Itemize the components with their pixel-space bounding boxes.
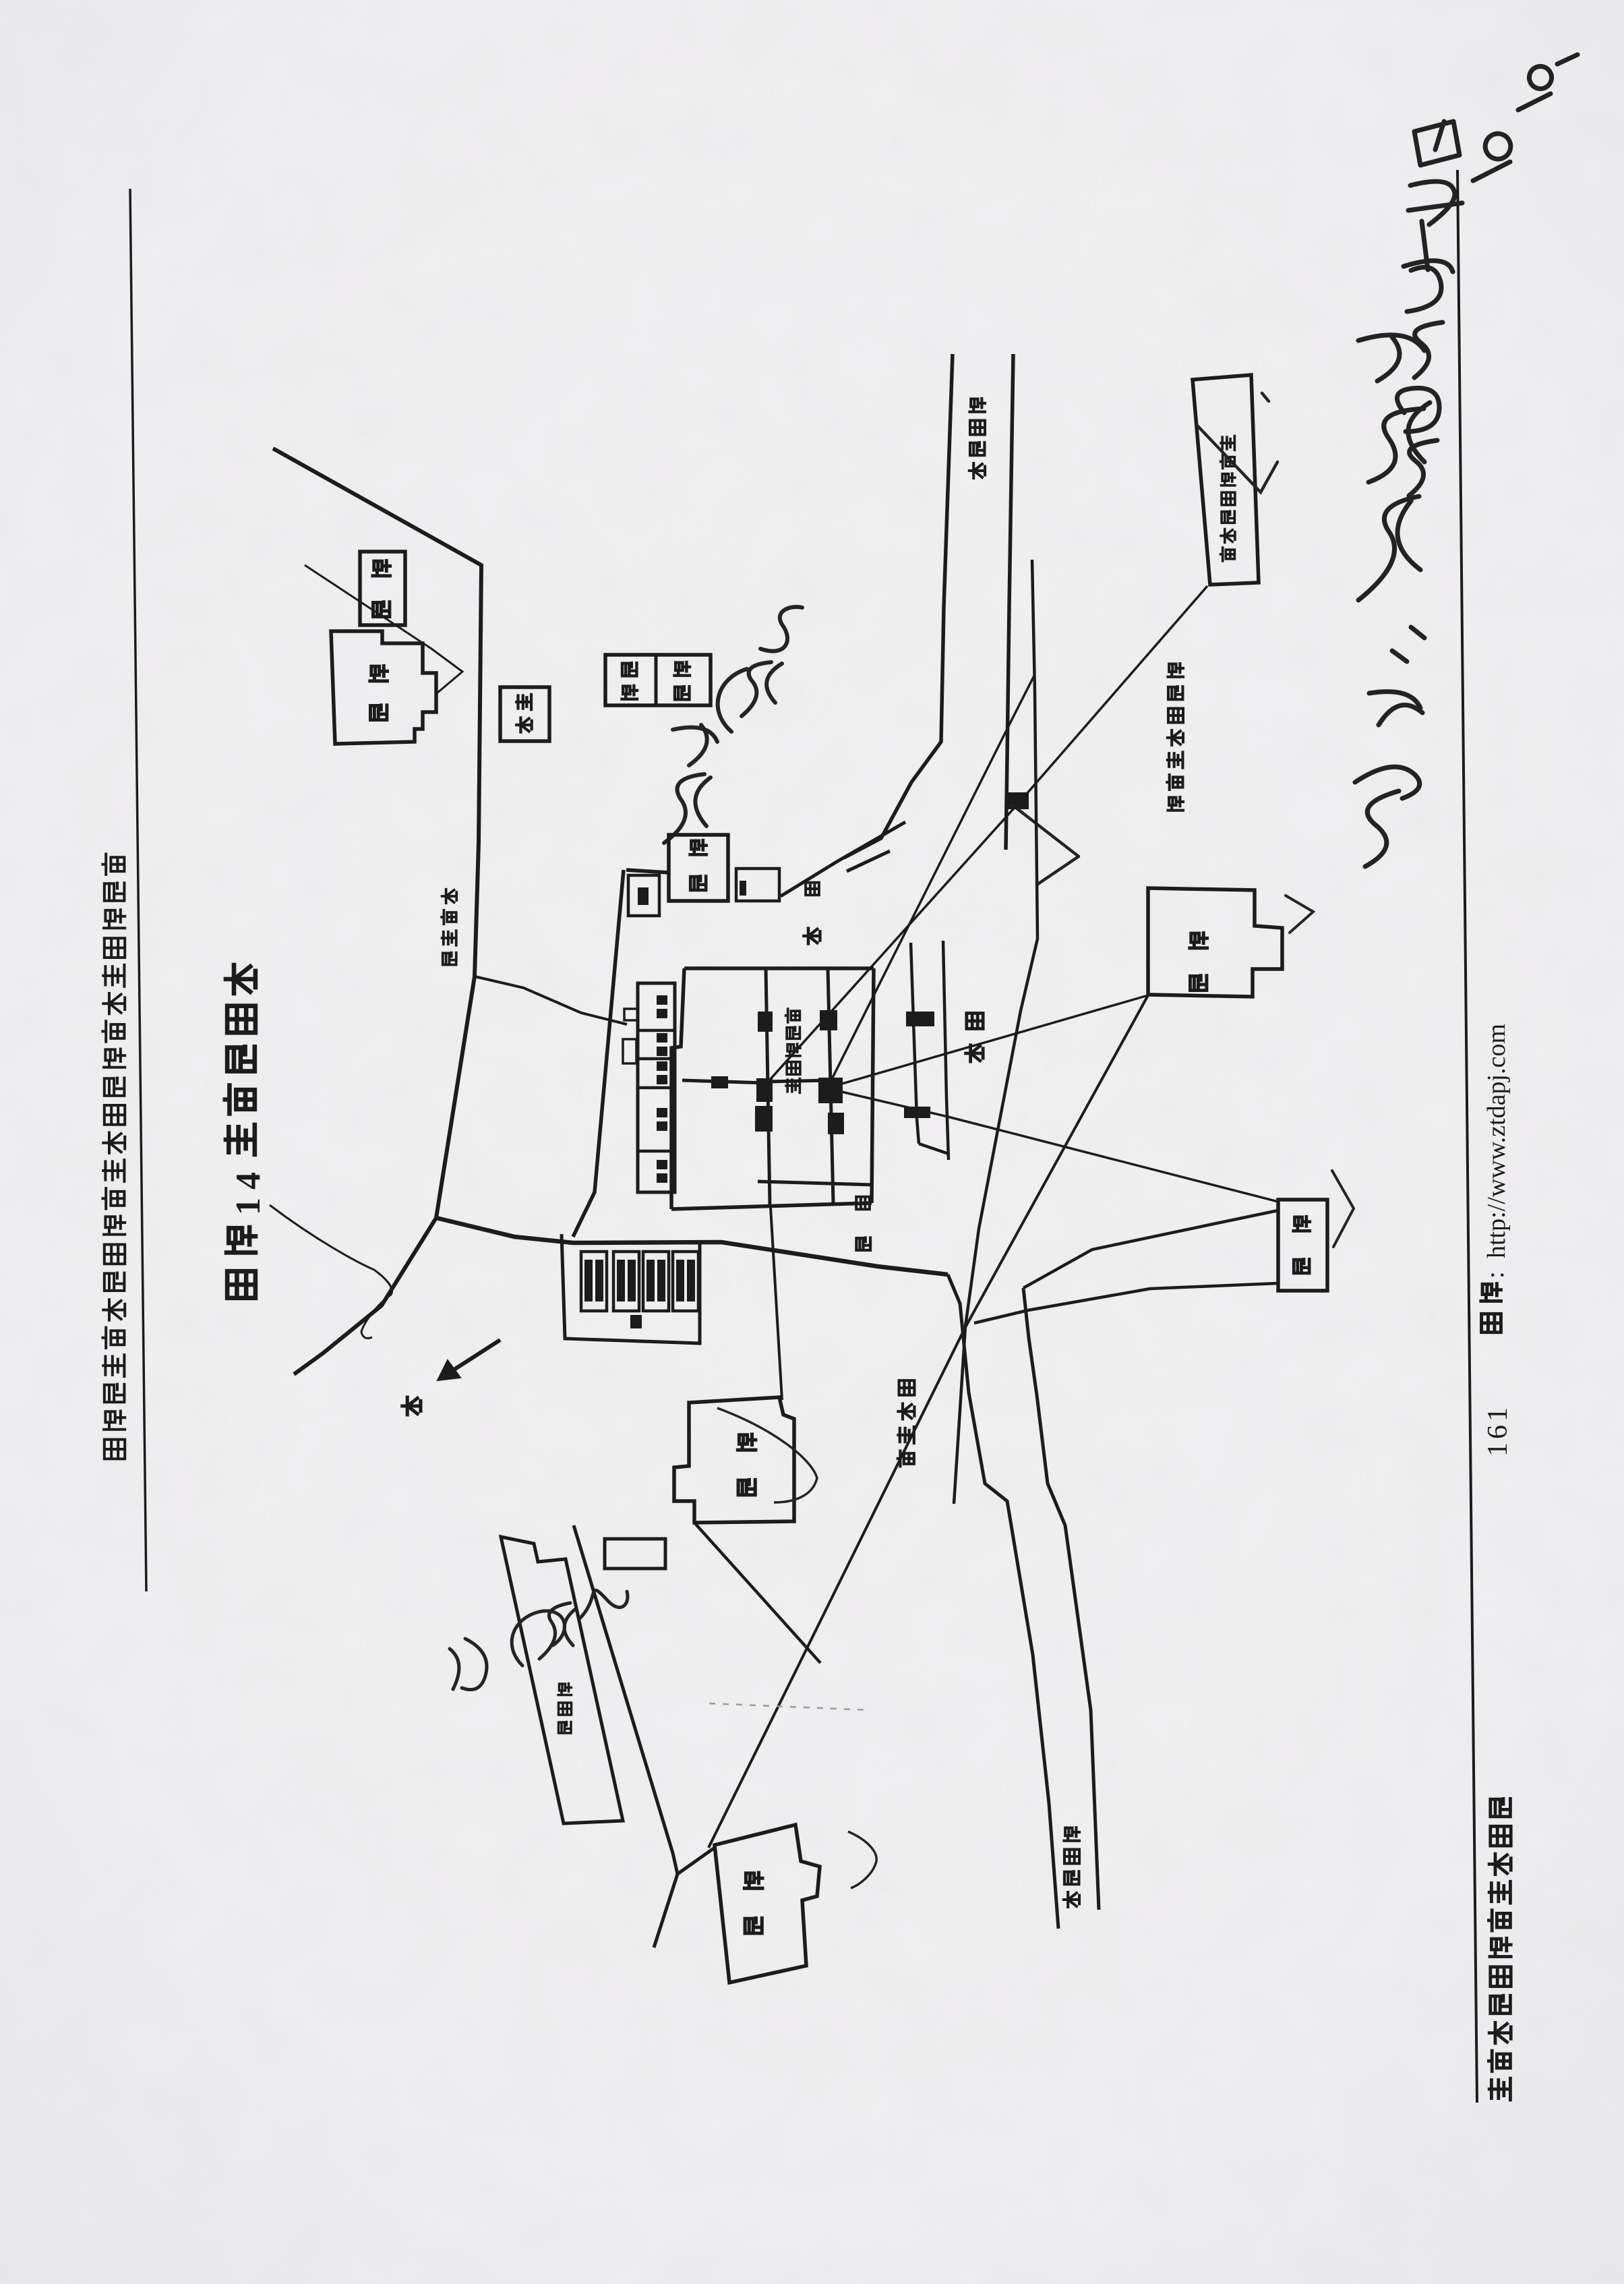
svg-text:14: 14 [229, 1164, 268, 1215]
svg-text:161: 161 [1482, 1404, 1513, 1457]
svg-text:http://www.ztdapj.com: http://www.ztdapj.com [1482, 1024, 1511, 1258]
svg-text::: : [1481, 1271, 1509, 1279]
